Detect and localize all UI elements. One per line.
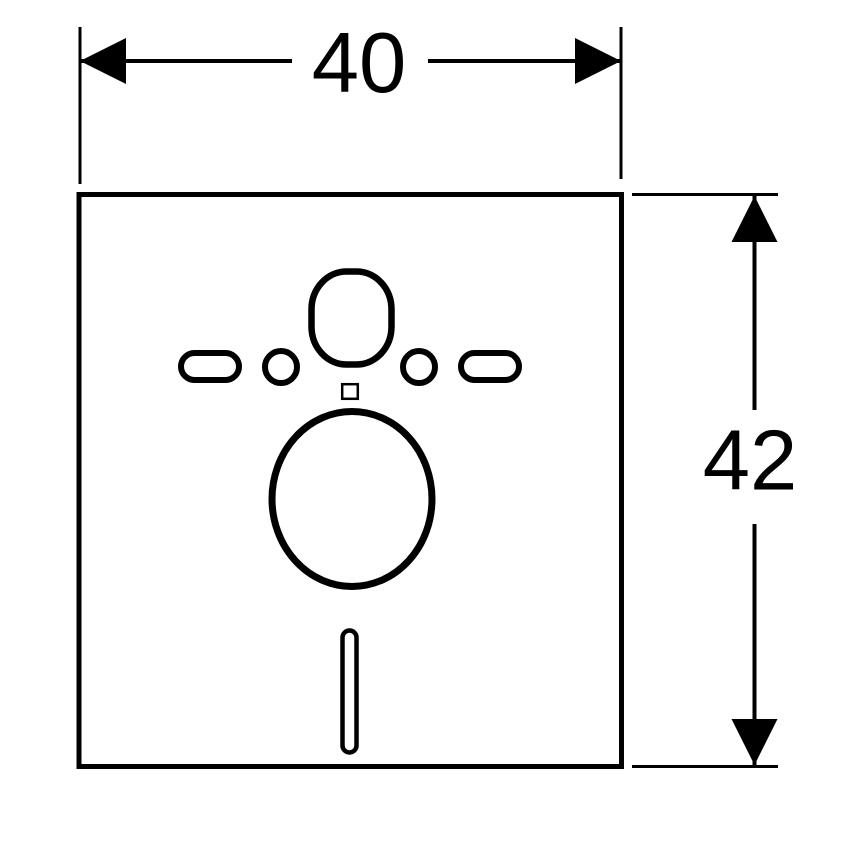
arrow-left-icon: [80, 38, 126, 84]
dimension-height: 42: [632, 195, 797, 767]
dimension-width-value: 40: [312, 16, 407, 111]
dimension-width: 40: [80, 16, 621, 184]
technical-drawing: 40 42: [0, 0, 868, 868]
dimension-height-value: 42: [703, 414, 798, 509]
plate-outline: [79, 195, 622, 767]
arrow-up-icon: [732, 196, 778, 242]
arrow-right-icon: [575, 38, 621, 84]
arrow-down-icon: [732, 719, 778, 765]
dimension-drawing-canvas: 40 42: [0, 0, 868, 868]
plate: [79, 195, 622, 767]
